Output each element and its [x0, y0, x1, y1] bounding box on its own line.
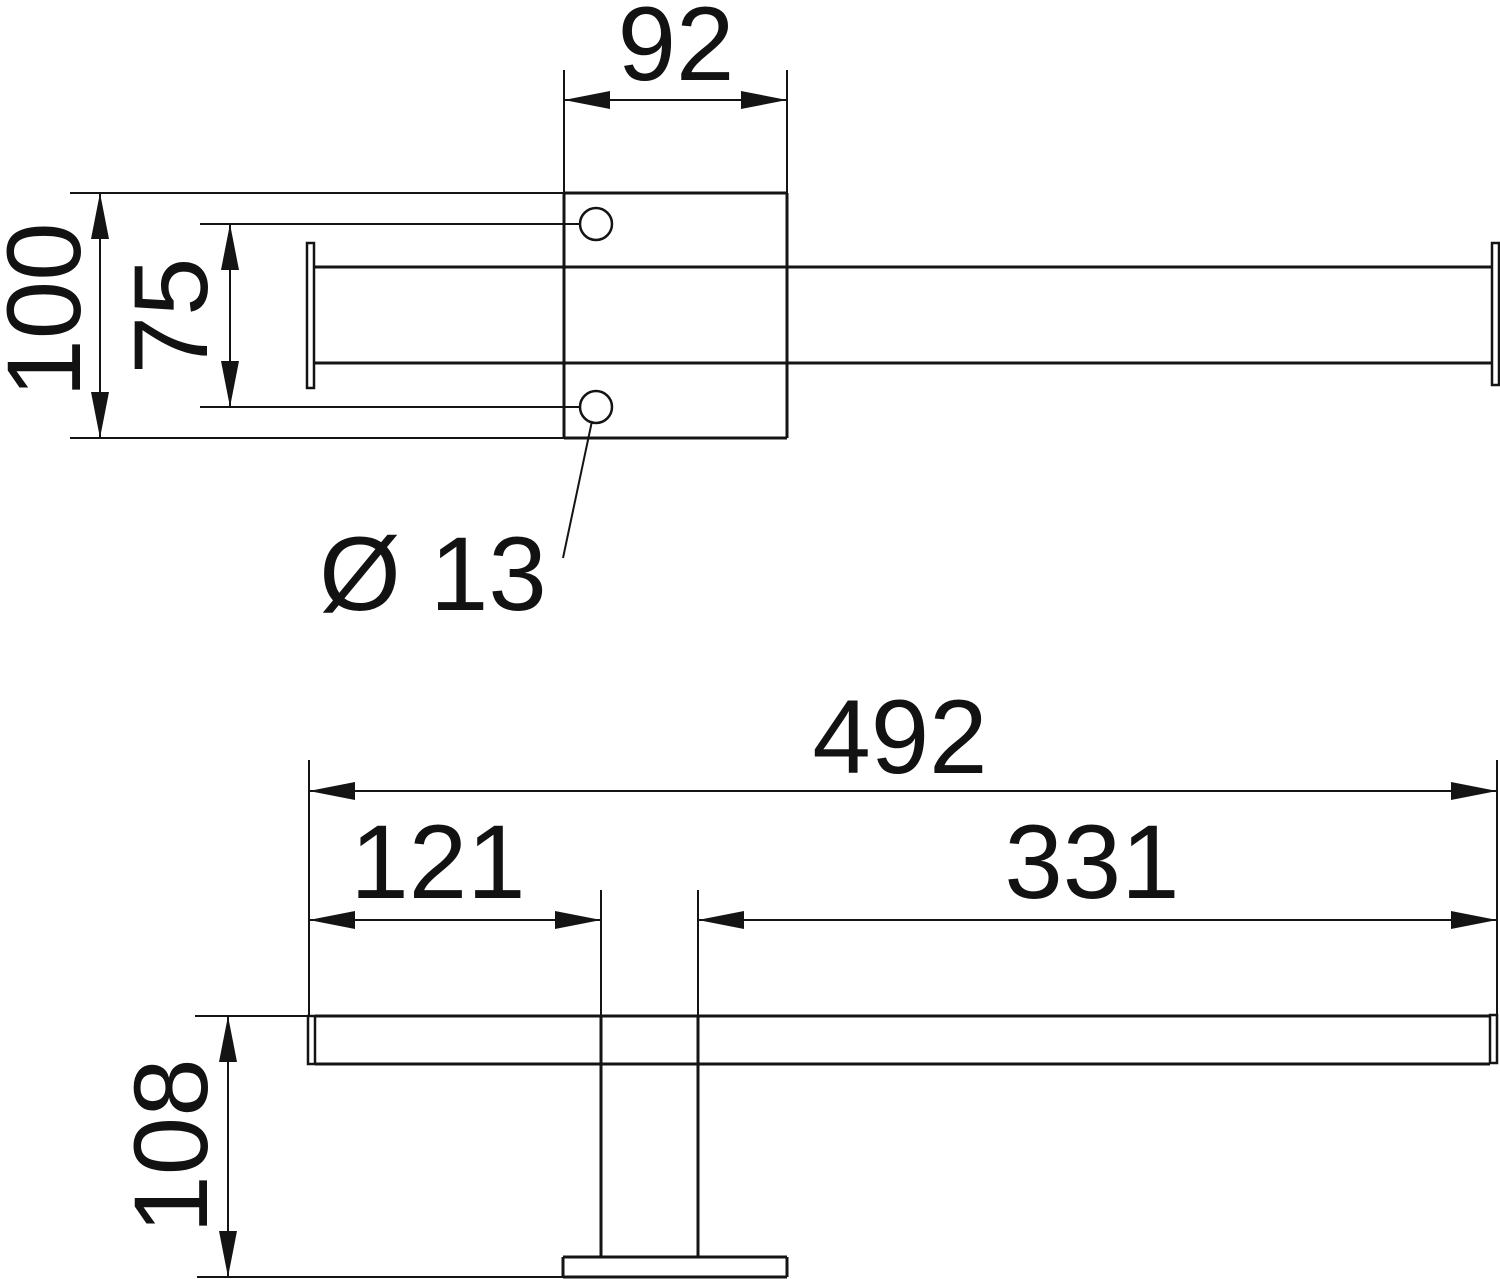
dimension-stand-height: 108: [113, 1016, 563, 1277]
arrowhead-121-left: [309, 911, 355, 929]
bar-outline: [308, 1015, 1497, 1064]
dim-label-hole-diameter: Ø 13: [319, 516, 547, 633]
dim-label-100: 100: [0, 222, 103, 397]
arrowhead-492-right: [1451, 782, 1497, 800]
rod-right-end-cap: [1492, 243, 1499, 385]
technical-drawing: 92 100 75 Ø 13: [0, 0, 1500, 1279]
arrowhead-121-right: [555, 911, 601, 929]
dimension-plate-height: 100: [0, 193, 564, 438]
rod-left-flange: [307, 243, 314, 388]
arrowhead-331-right: [1451, 911, 1497, 929]
dim-label-75: 75: [113, 258, 230, 375]
arrowhead-100-bottom: [91, 392, 109, 438]
bar-left-end-cap: [308, 1016, 315, 1064]
dim-label-92: 92: [618, 0, 735, 103]
dimension-offset-left: 121: [309, 804, 601, 1016]
leader-line-hole: [563, 421, 592, 558]
bar-right-end-cap: [1490, 1015, 1497, 1063]
dim-label-121: 121: [350, 804, 525, 921]
hole-bottom: [580, 391, 612, 423]
dim-label-331: 331: [1004, 804, 1179, 921]
rod-outline: [307, 243, 1499, 388]
dimension-hole-spacing: 75: [113, 224, 579, 407]
dimension-offset-right: 331: [698, 804, 1497, 1016]
arrowhead-108-top: [219, 1016, 237, 1062]
base-plate: [563, 1257, 787, 1277]
arrowhead-92-right: [741, 91, 787, 109]
dim-label-492: 492: [812, 679, 987, 796]
dimension-plate-width: 92: [564, 0, 787, 193]
top-view: 92 100 75 Ø 13: [0, 0, 1499, 633]
side-view: 492 121 331 108: [113, 679, 1497, 1277]
arrowhead-108-bottom: [219, 1231, 237, 1277]
arrowhead-92-left: [564, 91, 610, 109]
dim-label-108: 108: [113, 1058, 230, 1233]
hole-top: [580, 208, 612, 240]
arrowhead-331-left: [698, 911, 744, 929]
callout-hole-diameter: Ø 13: [319, 421, 592, 633]
arrowhead-492-left: [309, 782, 355, 800]
stem-outline: [601, 1016, 698, 1257]
drawing-canvas: 92 100 75 Ø 13: [0, 0, 1500, 1279]
